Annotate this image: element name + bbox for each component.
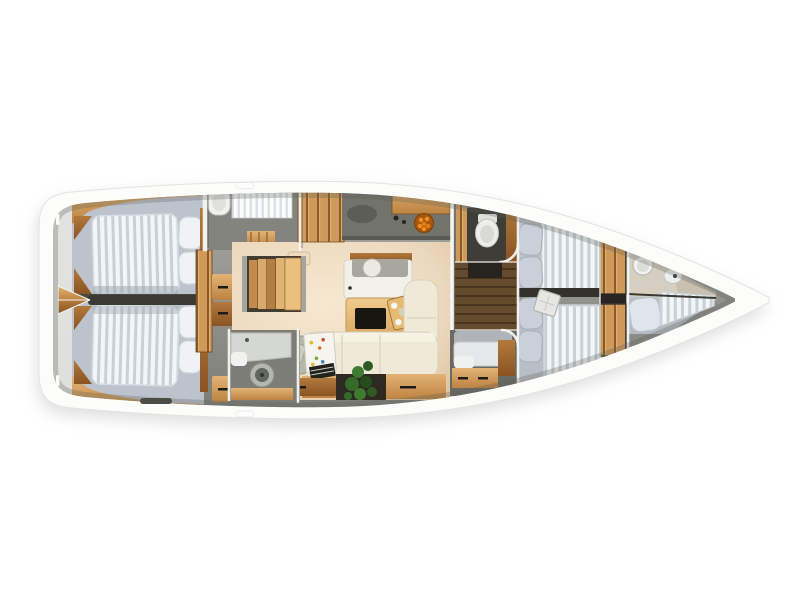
round-tray-icon xyxy=(363,259,381,277)
fruit-bowl-icon xyxy=(415,214,434,233)
mattress xyxy=(92,305,179,386)
sideboard xyxy=(344,253,412,298)
pillow xyxy=(178,217,202,250)
deck-hatch-rim-bottom xyxy=(236,411,254,417)
companionway-stairs xyxy=(242,256,306,312)
berth-dresser xyxy=(498,340,515,376)
pillow xyxy=(518,223,543,256)
washer-icon xyxy=(250,363,274,387)
yacht-floorplan-canvas xyxy=(0,0,800,600)
floorplan-svg xyxy=(0,0,800,600)
lazarette-vent xyxy=(140,398,172,404)
galley-sink-icon xyxy=(347,205,377,223)
interior xyxy=(53,184,735,415)
stern-cleat xyxy=(56,214,60,225)
mid-corridor xyxy=(455,262,517,330)
pillow xyxy=(518,256,543,288)
stern-cleat xyxy=(56,375,60,386)
pillow xyxy=(518,330,543,362)
pillow xyxy=(628,296,662,333)
aft-head-starboard xyxy=(228,330,300,402)
faucet-icon xyxy=(394,216,399,221)
deck-hatch-rim-top xyxy=(236,183,254,189)
toilet-icon xyxy=(476,214,499,247)
mattress xyxy=(92,214,179,295)
